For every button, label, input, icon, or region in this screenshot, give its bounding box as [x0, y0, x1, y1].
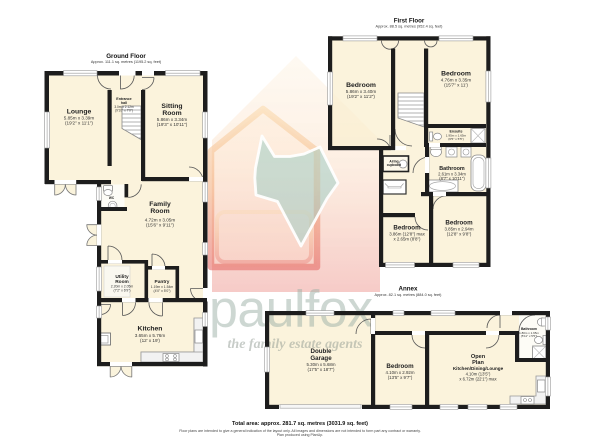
svg-text:(19'2" x 11'2"): (19'2" x 11'2") — [347, 94, 375, 99]
svg-text:Plan produced using PlanUp.: Plan produced using PlanUp. — [277, 433, 324, 437]
svg-text:Bedroom: Bedroom — [386, 363, 414, 370]
svg-text:(7'2" x 6'9"): (7'2" x 6'9") — [113, 289, 130, 293]
svg-text:(15'6" x 9'11"): (15'6" x 9'11") — [146, 223, 174, 228]
svg-text:(17'5" x 18'7"): (17'5" x 18'7") — [307, 367, 335, 372]
svg-text:the family estate agents: the family estate agents — [228, 337, 363, 352]
svg-text:Room: Room — [162, 110, 181, 117]
svg-text:Approx. 82.1 sq. metres (884.0: Approx. 82.1 sq. metres (884.0 sq. feet) — [375, 293, 443, 297]
svg-text:WC: WC — [109, 196, 115, 200]
svg-text:Bedroom: Bedroom — [346, 82, 376, 89]
svg-text:Annex: Annex — [399, 286, 418, 293]
svg-text:(19'2" x 11'1"): (19'2" x 11'1") — [65, 121, 93, 126]
svg-text:x 2.65m (8'8"): x 2.65m (8'8") — [393, 237, 421, 242]
svg-text:(19'3" x 10'11"): (19'3" x 10'11") — [157, 122, 188, 127]
svg-text:Ground Floor: Ground Floor — [106, 53, 146, 60]
svg-text:Room: Room — [150, 208, 169, 215]
svg-text:(15'7" x 11'): (15'7" x 11') — [444, 83, 468, 88]
svg-text:(12'8" x 9'8"): (12'8" x 9'8") — [447, 232, 472, 237]
svg-text:Garage: Garage — [310, 355, 332, 362]
svg-text:Bedroom: Bedroom — [441, 71, 471, 78]
svg-text:Approx. 88.5 sq. metres (952.4: Approx. 88.5 sq. metres (952.4 sq. feet) — [376, 25, 444, 29]
svg-text:Kitchen: Kitchen — [138, 326, 163, 333]
svg-text:(13'5" x 9'7"): (13'5" x 9'7") — [388, 375, 413, 380]
svg-text:Total area: approx. 281.7 sq.: Total area: approx. 281.7 sq. metres (30… — [232, 421, 368, 427]
svg-text:cupboard: cupboard — [387, 163, 402, 167]
svg-text:Family: Family — [149, 201, 171, 208]
svg-text:Kitchen/Dining/Lounge: Kitchen/Dining/Lounge — [453, 366, 504, 371]
svg-text:(6'5" x 5'5"): (6'5" x 5'5") — [448, 137, 464, 141]
svg-text:x 6.72m (22'1") max: x 6.72m (22'1") max — [459, 377, 497, 382]
svg-text:(12' x 19'): (12' x 19') — [140, 338, 160, 343]
svg-text:Bedroom: Bedroom — [445, 220, 473, 227]
svg-text:Double: Double — [311, 348, 333, 355]
svg-text:(5'11" x 5'5"): (5'11" x 5'5") — [521, 334, 538, 338]
svg-text:First Floor: First Floor — [394, 18, 425, 25]
svg-text:Bedroom: Bedroom — [393, 225, 421, 232]
svg-text:Approx. 111.1 sq. metres (1195: Approx. 111.1 sq. metres (1195.2 sq. fee… — [91, 60, 162, 64]
svg-text:(9'10" x 7'0"): (9'10" x 7'0") — [115, 109, 133, 113]
svg-text:Sitting: Sitting — [161, 103, 182, 110]
svg-text:(8'7" x 10'11"): (8'7" x 10'11") — [439, 176, 465, 181]
svg-text:(4'0" x 5'0"): (4'0" x 5'0") — [153, 289, 170, 293]
svg-text:Lounge: Lounge — [67, 109, 92, 116]
svg-text:paulfox: paulfox — [209, 281, 373, 339]
